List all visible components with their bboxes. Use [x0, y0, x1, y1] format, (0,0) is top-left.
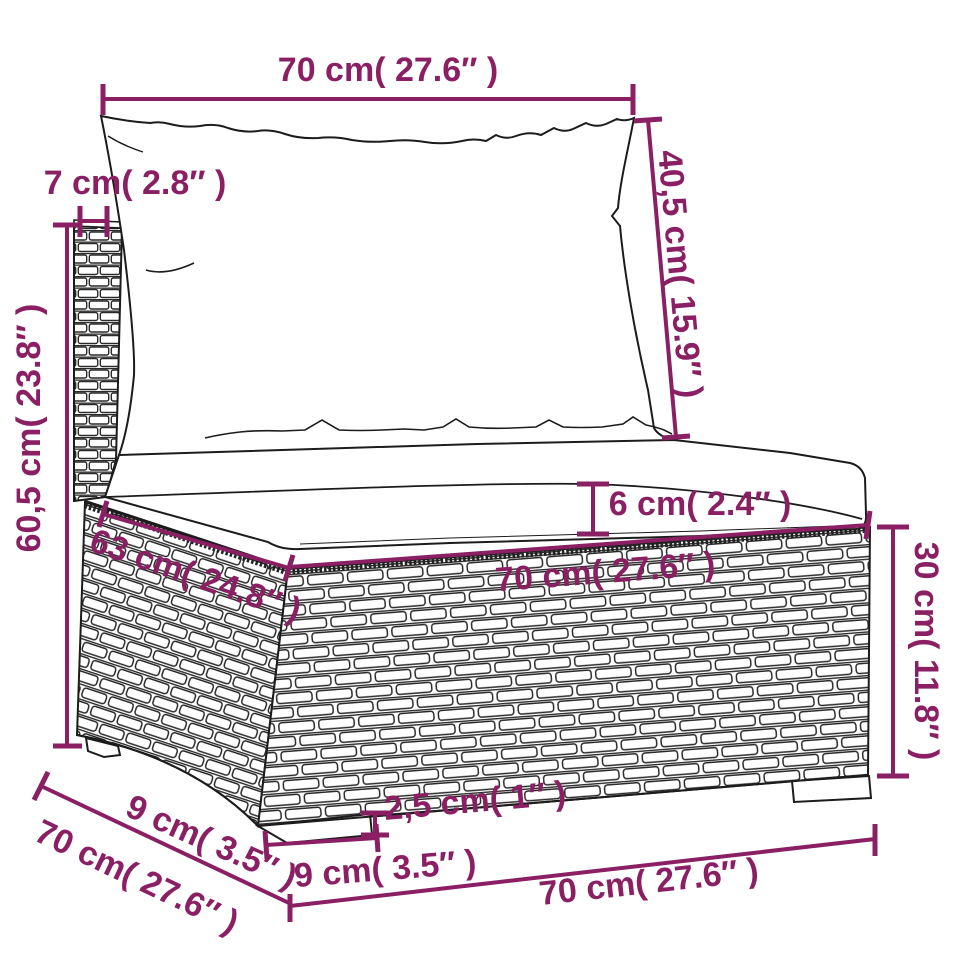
svg-text:7 cm( 2.8″ ): 7 cm( 2.8″ ) — [44, 164, 227, 202]
svg-text:70 cm( 27.6″ ): 70 cm( 27.6″ ) — [278, 51, 498, 89]
svg-text:60,5 cm( 23.8″ ): 60,5 cm( 23.8″ ) — [10, 304, 48, 553]
svg-text:6 cm( 2.4″ ): 6 cm( 2.4″ ) — [609, 485, 792, 523]
svg-text:30 cm( 11.8″ ): 30 cm( 11.8″ ) — [907, 542, 945, 761]
